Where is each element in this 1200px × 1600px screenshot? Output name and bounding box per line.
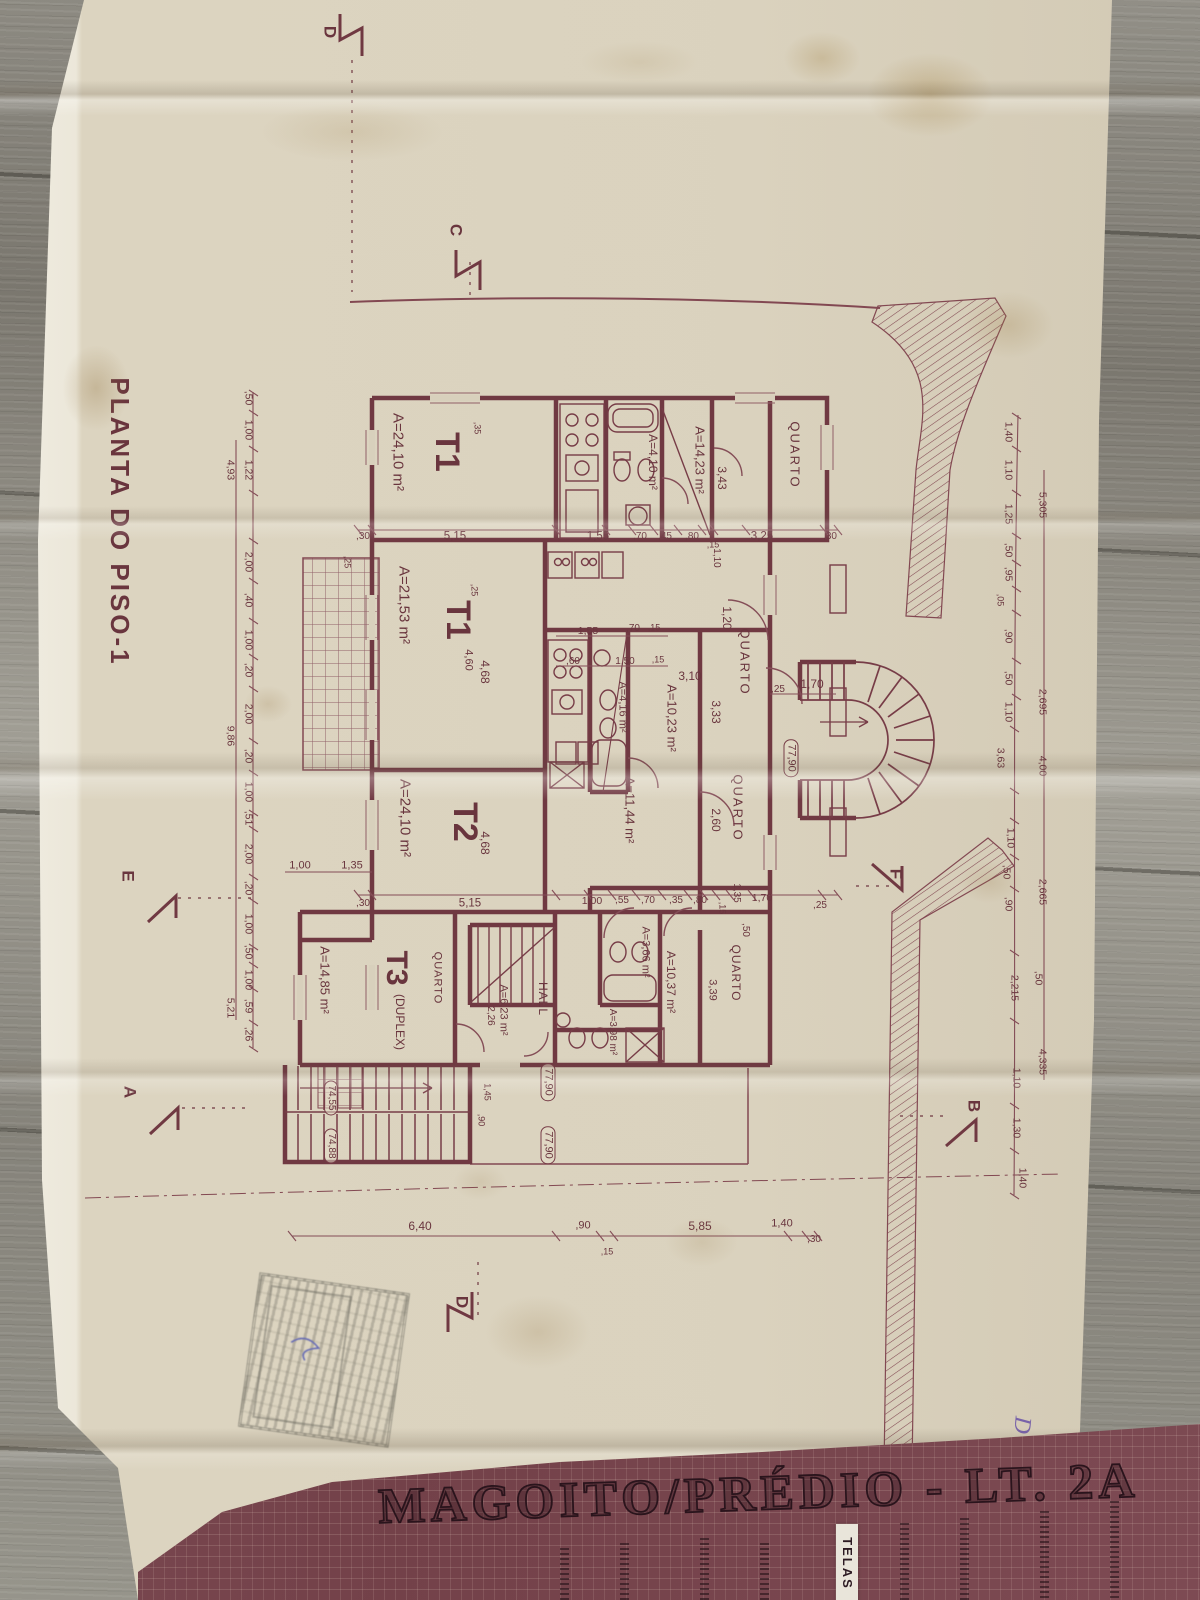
pen-scribble — [241, 1276, 406, 1445]
site-terrain — [85, 298, 1062, 1470]
title-block-fine-print — [620, 1540, 629, 1600]
curved-staircase — [800, 662, 934, 818]
photo-of-floor-plan: PLANTA DO PISO-1T1A=24,10 m²A=14,23 m²QU… — [0, 0, 1200, 1600]
duplex-staircase — [470, 925, 555, 1005]
floor-plan-drawing — [0, 0, 1200, 1600]
telas-text: TELAS — [840, 1537, 855, 1590]
telas-label: TELAS — [836, 1524, 858, 1600]
walls — [285, 398, 856, 1162]
section-lines — [148, 14, 976, 1332]
title-block-fine-print — [960, 1516, 969, 1600]
title-block-fine-print — [900, 1520, 909, 1600]
ink-stamp — [238, 1272, 410, 1448]
title-block-fine-print — [560, 1546, 569, 1600]
title-block-fine-print — [1040, 1508, 1049, 1598]
title-block-fine-print — [760, 1540, 769, 1600]
entrance-staircase — [285, 1066, 470, 1160]
title-block-fine-print — [1110, 1500, 1119, 1598]
title-block-fine-print — [700, 1536, 709, 1600]
